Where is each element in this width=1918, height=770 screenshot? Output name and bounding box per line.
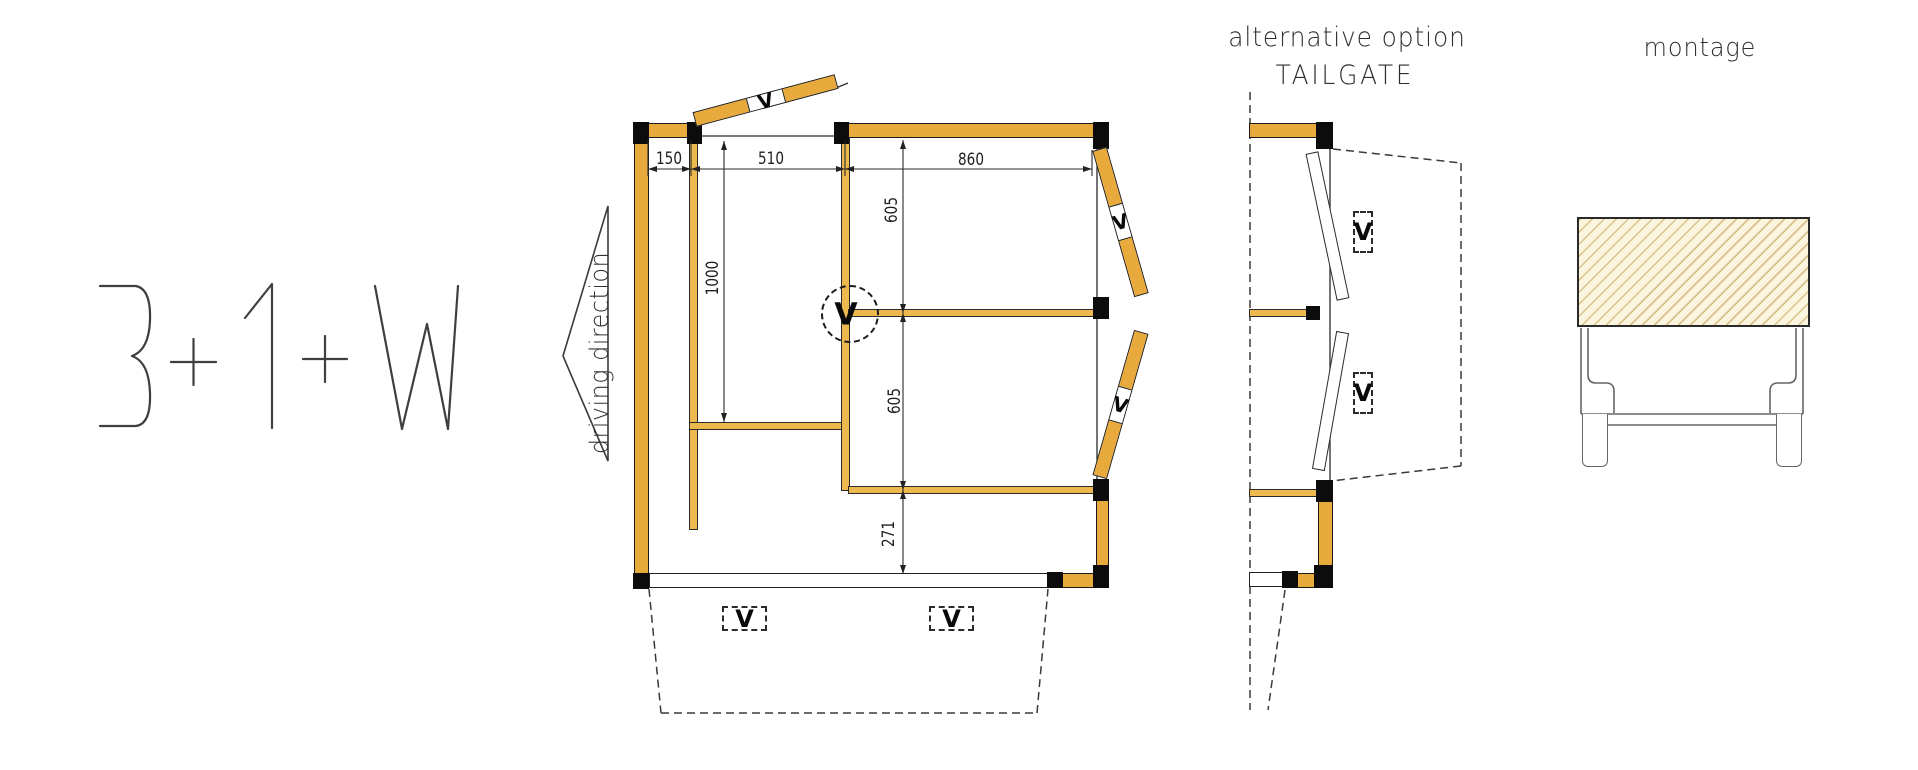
dim-605-lower: 605 — [885, 388, 905, 414]
dim-510: 510 — [758, 149, 784, 169]
dim-1000: 1000 — [703, 261, 723, 296]
dim-271: 271 — [879, 521, 899, 547]
dim-605-upper: 605 — [882, 197, 902, 223]
dim-860: 860 — [958, 150, 984, 170]
technical-drawing-canvas: V V V V V V V V — [0, 0, 1918, 770]
driving-direction-label: driving direction — [585, 243, 615, 464]
alt-tailgate-title: TAILGATE — [1276, 60, 1415, 91]
dimension-arrowheads — [648, 140, 1092, 574]
dim-150: 150 — [656, 149, 682, 169]
dimension-layer — [0, 0, 1918, 770]
montage-title: montage — [1644, 33, 1757, 63]
dimension-lines — [648, 140, 1092, 574]
alt-option-title: alternative option — [1228, 22, 1466, 53]
